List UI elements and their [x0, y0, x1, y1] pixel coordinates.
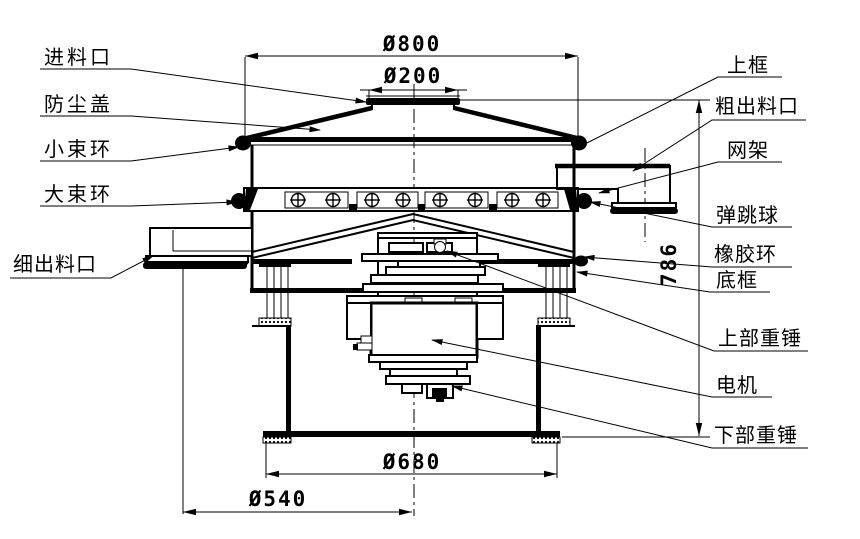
- label-feed-inlet: 进料口: [44, 45, 113, 69]
- label-small-clamp-ring: 小束环: [44, 137, 113, 161]
- small-clamp-ring: [235, 136, 587, 151]
- dimension-total-height: 786: [458, 100, 710, 437]
- label-bottom-frame: 底框: [716, 268, 758, 292]
- dim-label-inlet-diameter: Ø200: [383, 64, 443, 88]
- label-rubber-ring: 橡胶环: [714, 242, 777, 266]
- motor: [347, 296, 503, 362]
- left-spring: [259, 262, 291, 326]
- label-motor: 电机: [716, 373, 758, 397]
- lower-weight-assembly: [380, 362, 470, 402]
- label-dust-cover: 防尘盖: [44, 92, 113, 116]
- dim-label-base-outer: Ø680: [382, 450, 442, 474]
- dust-cover: [247, 108, 577, 138]
- vibrating-screen-drawing: Ø800 Ø200 786 Ø680 Ø540: [0, 0, 860, 539]
- leader-coarse-outlet: [633, 120, 806, 171]
- feed-inlet: [366, 96, 460, 110]
- leader-dust-cover: [40, 116, 320, 130]
- dim-label-base-inner: Ø540: [248, 487, 308, 511]
- dimension-base-inner: Ø540: [183, 487, 412, 515]
- label-coarse-outlet: 粗出料口: [715, 94, 799, 118]
- label-upper-weight: 上部重锤: [718, 326, 802, 350]
- right-spring: [538, 262, 570, 326]
- label-lower-weight: 下部重锤: [714, 423, 798, 447]
- fine-outlet: [143, 228, 252, 269]
- label-bounce-ball: 弹跳球: [716, 203, 779, 227]
- upper-weight-assembly: [362, 233, 503, 298]
- label-large-clamp-ring: 大束环: [44, 182, 113, 206]
- label-screen-frame: 网架: [727, 138, 769, 162]
- screen-deck: [244, 188, 578, 211]
- label-upper-frame: 上框: [727, 53, 769, 77]
- dimension-base-outer: Ø680: [266, 441, 557, 478]
- dim-label-top-diameter: Ø800: [382, 32, 442, 56]
- label-fine-outlet: 细出料口: [13, 252, 97, 276]
- upper-frame: [252, 145, 574, 188]
